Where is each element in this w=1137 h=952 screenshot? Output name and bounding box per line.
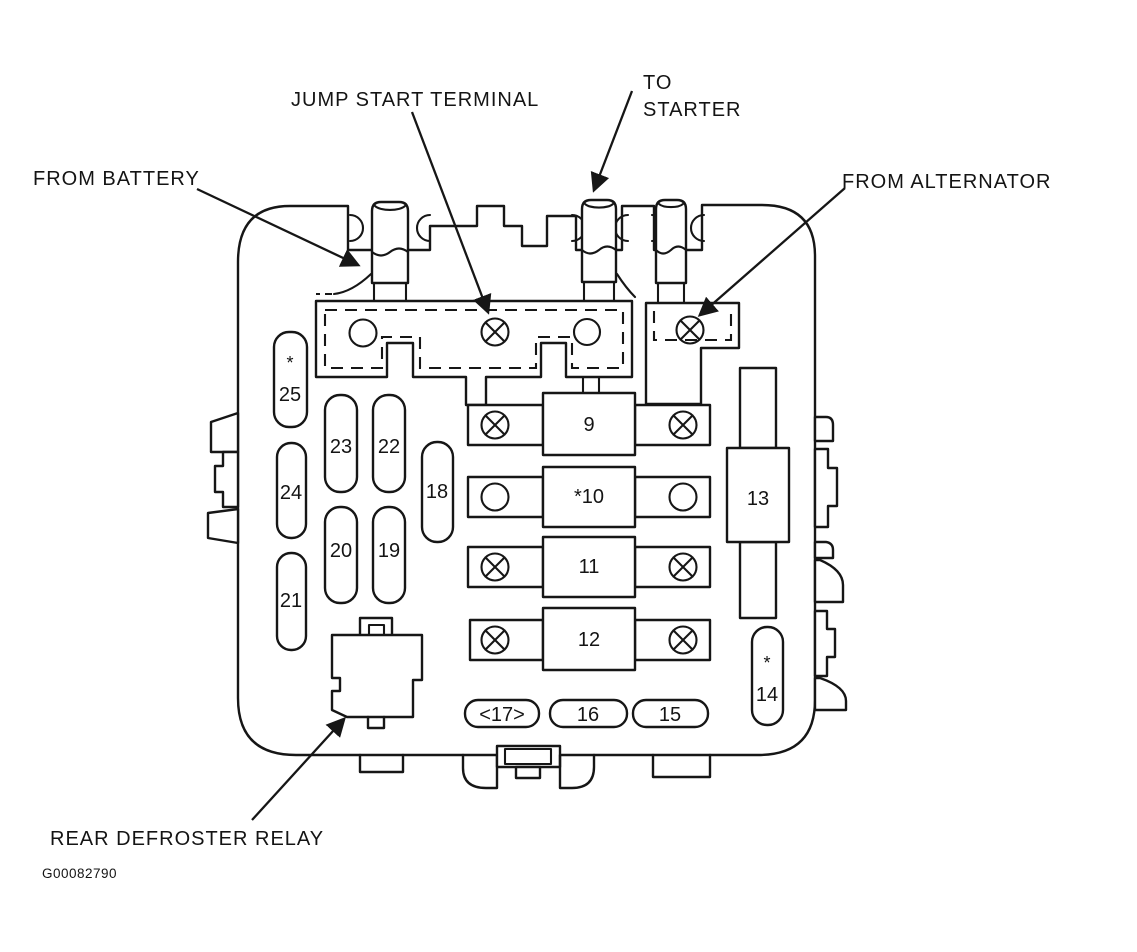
jump-start-terminal-label: JUMP START TERMINAL [291, 89, 539, 111]
to-starter-label-line1: TO [643, 72, 672, 94]
rear-defroster-relay [332, 618, 422, 728]
alternator-post-body [656, 200, 686, 283]
fuse-17-label: <17> [479, 704, 525, 726]
fuse-18-label: 18 [426, 481, 448, 503]
to-starter-arrow [594, 91, 632, 190]
alternator-block-outline [646, 303, 739, 404]
fuse-12-label: 12 [578, 629, 600, 651]
callout-to-starter: TO STARTER [594, 72, 742, 190]
figure-id: G00082790 [42, 866, 117, 881]
fuse-13-lower-strip [740, 542, 776, 618]
starter-post-body [582, 200, 616, 282]
fuse-9-right-terminal [635, 405, 710, 445]
fuse-15-label: 15 [659, 704, 681, 726]
from-battery-label: FROM BATTERY [33, 168, 200, 190]
right-bracket-plate-upper [815, 449, 837, 527]
fuse-19-label: 19 [378, 540, 400, 562]
right-hook-lower [815, 542, 833, 558]
alternator-post-base-lines [658, 283, 684, 303]
fuse-23-label: 23 [330, 436, 352, 458]
fuse-9-left-terminal [468, 405, 543, 445]
fuse-25-label: 25 [279, 384, 301, 406]
bottom-clip-arm-left [463, 755, 497, 788]
callout-jump-start-terminal: JUMP START TERMINAL [291, 89, 539, 312]
starter-wire-curve [617, 274, 635, 297]
rear-defroster-relay-arrow [252, 719, 344, 820]
fuse-22-label: 22 [378, 436, 400, 458]
slot-arc-2 [417, 215, 430, 241]
fuse-box-diagram: 9 *10 11 12 13 [0, 0, 1137, 952]
from-alternator-label: FROM ALTERNATOR [842, 171, 1051, 193]
fuse-20-label: 20 [330, 540, 352, 562]
fuse-25-star: * [286, 353, 293, 373]
fuse-12-right-terminal [635, 620, 710, 660]
from-battery-arrow [197, 189, 358, 265]
right-lug-lower [815, 678, 846, 710]
relay-top-tab [360, 618, 392, 636]
fuse-11-left-terminal [468, 547, 543, 587]
fuse-14-pill [752, 627, 783, 725]
fuse-14-label: 14 [756, 684, 778, 706]
left-tab-upper [211, 413, 238, 452]
left-tab-lower [208, 509, 238, 543]
right-bracket-plate-lower [815, 611, 835, 676]
right-lug-upper [815, 560, 843, 602]
fuse-10-label: *10 [574, 486, 604, 508]
from-alternator-arrow [700, 188, 845, 315]
fuse-25-pill [274, 332, 307, 427]
fuse-13-upper-strip [740, 368, 776, 448]
fuse-row-12: 12 [470, 608, 710, 670]
fuse-10-right-terminal [635, 477, 710, 517]
callout-from-alternator: FROM ALTERNATOR [700, 171, 1051, 315]
fuse-11-label: 11 [579, 556, 600, 578]
relay-bottom-tab [368, 717, 384, 728]
fuse-24-label: 24 [280, 482, 302, 504]
fuse-9-label: 9 [583, 414, 594, 436]
bottom-tab-right [653, 755, 710, 777]
fuse-13: 13 [727, 368, 789, 618]
fuse-16-label: 16 [577, 704, 599, 726]
left-bracket-plate [215, 452, 238, 507]
bottom-tab-left [360, 755, 403, 772]
slot-arc-1 [350, 215, 363, 241]
callout-rear-defroster-relay: REAR DEFROSTER RELAY [50, 719, 344, 850]
bus-bar-outline [316, 301, 632, 405]
alternator-terminal-block [646, 303, 739, 404]
fuse-21-label: 21 [280, 590, 302, 612]
jump-start-bus-bar [316, 301, 632, 405]
battery-post-base-lines [374, 283, 406, 301]
fuse-13-label: 13 [747, 488, 769, 510]
fuse-row-11: 11 [468, 537, 710, 597]
fuse-row-10: *10 [468, 467, 710, 527]
fuse-11-right-terminal [635, 547, 710, 587]
bus-bar-to-fuse9-trace [583, 377, 599, 393]
callout-from-battery: FROM BATTERY [33, 168, 358, 265]
fuse-14-star: * [763, 653, 770, 673]
rear-defroster-relay-label: REAR DEFROSTER RELAY [50, 828, 324, 850]
fuse-box-diagram-page: 9 *10 11 12 13 [0, 0, 1137, 952]
alternator-post [656, 200, 686, 303]
battery-wire-curve [334, 274, 371, 294]
starter-post-base-lines [584, 282, 614, 301]
right-hook-upper [815, 417, 833, 441]
battery-post-body [372, 202, 408, 283]
fuse-10-left-terminal [468, 477, 543, 517]
bottom-latch-tab [516, 767, 540, 778]
relay-body [332, 635, 422, 717]
to-starter-label-line2: STARTER [643, 99, 742, 121]
bottom-clip-arm-right [560, 755, 594, 788]
